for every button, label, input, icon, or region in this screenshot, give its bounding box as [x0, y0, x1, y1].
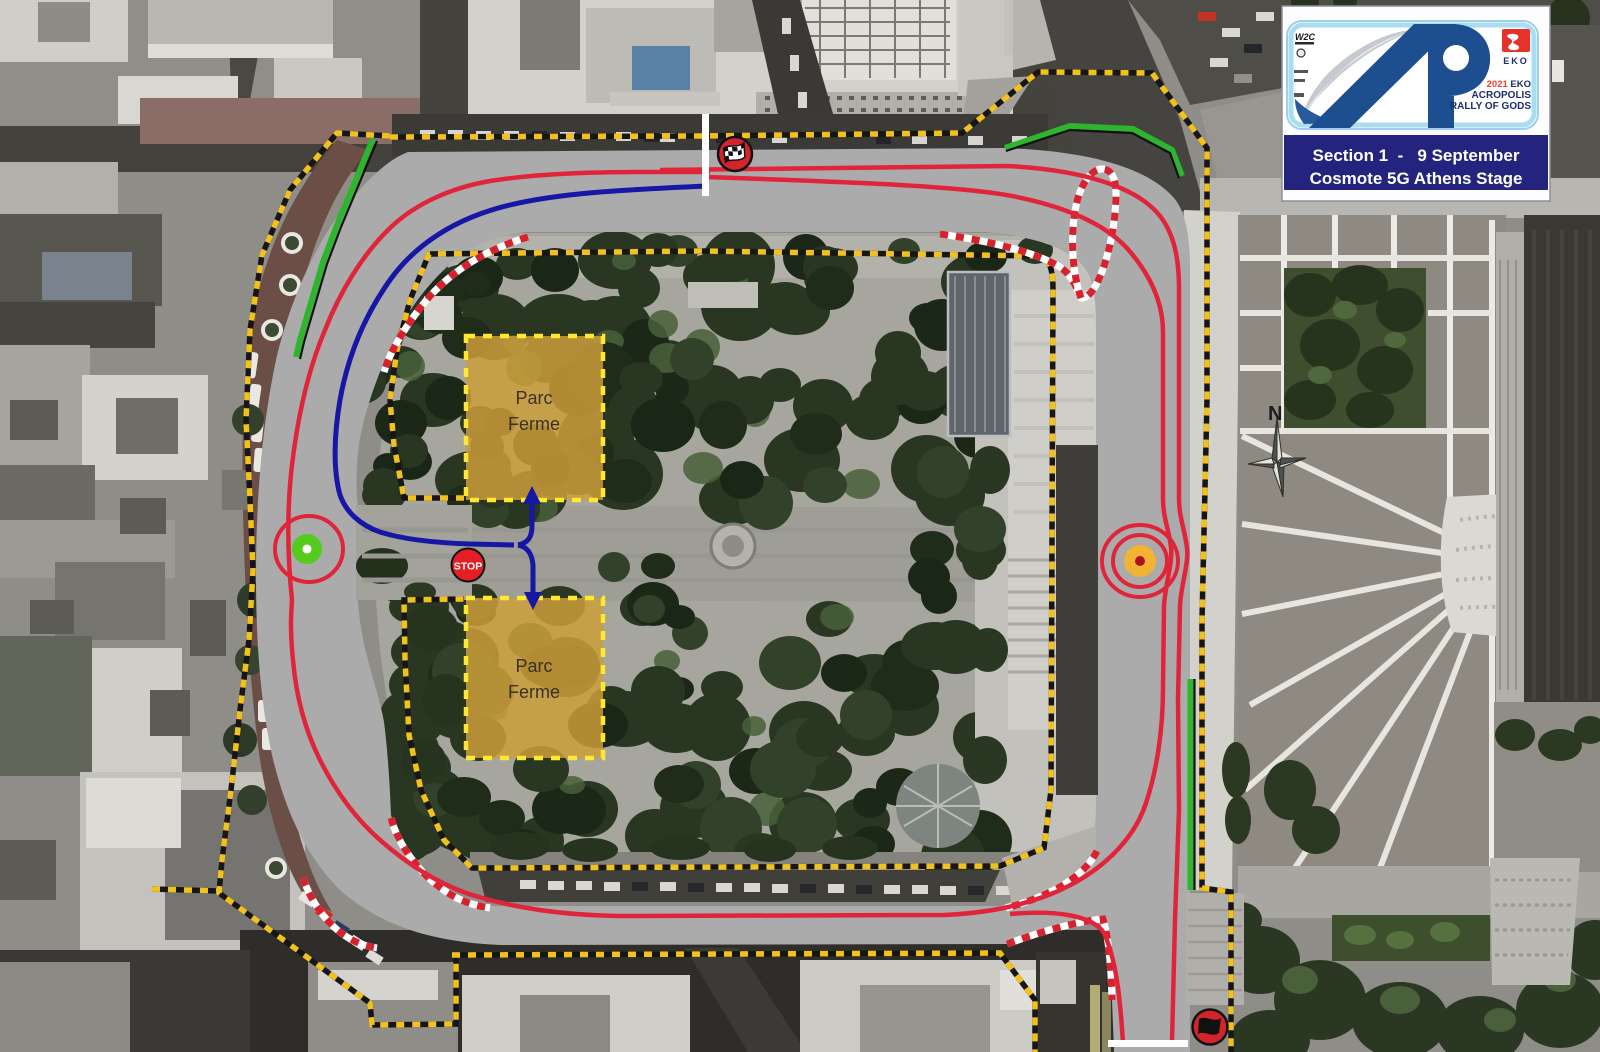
svg-text:N: N: [1268, 403, 1282, 425]
svg-text:Parc: Parc: [515, 656, 552, 676]
svg-text:2021 EKO: 2021 EKO: [1487, 79, 1531, 90]
svg-text:ACROPOLIS: ACROPOLIS: [1472, 90, 1532, 101]
svg-text:STOP: STOP: [454, 561, 482, 573]
svg-text:Parc: Parc: [515, 388, 552, 408]
svg-text:Cosmote 5G Athens Stage: Cosmote 5G Athens Stage: [1310, 169, 1523, 188]
svg-text:W2C: W2C: [1295, 32, 1316, 42]
svg-text:EKO: EKO: [1503, 56, 1529, 66]
svg-text:RALLY OF GODS: RALLY OF GODS: [1450, 101, 1531, 112]
svg-text:Ferme: Ferme: [508, 682, 560, 702]
svg-text:Section 1 - 9 September: Section 1 - 9 September: [1313, 146, 1520, 165]
svg-text:Ferme: Ferme: [508, 414, 560, 434]
